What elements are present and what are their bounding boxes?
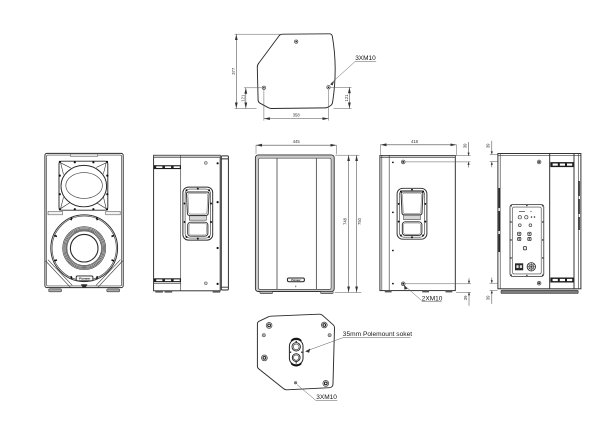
svg-text:35mm Polemount soket: 35mm Polemount soket — [343, 331, 412, 338]
svg-text:121: 121 — [344, 94, 349, 102]
svg-text:Pioneer: Pioneer — [291, 278, 302, 282]
svg-text:418: 418 — [411, 139, 419, 144]
svg-text:39: 39 — [463, 143, 468, 148]
svg-text:748: 748 — [343, 217, 348, 225]
svg-text:750: 750 — [357, 217, 362, 225]
svg-text:377: 377 — [231, 67, 236, 75]
svg-text:2XM10: 2XM10 — [422, 295, 443, 302]
svg-text:358: 358 — [293, 113, 301, 118]
svg-text:3XM10: 3XM10 — [355, 55, 376, 62]
svg-text:39: 39 — [463, 295, 468, 300]
svg-text:39: 39 — [486, 143, 491, 148]
svg-text:39: 39 — [486, 295, 491, 300]
svg-text:121: 121 — [240, 94, 245, 102]
svg-text:3XM10: 3XM10 — [316, 394, 337, 401]
svg-text:Pioneer: Pioneer — [79, 277, 91, 281]
svg-text:445: 445 — [293, 139, 301, 144]
